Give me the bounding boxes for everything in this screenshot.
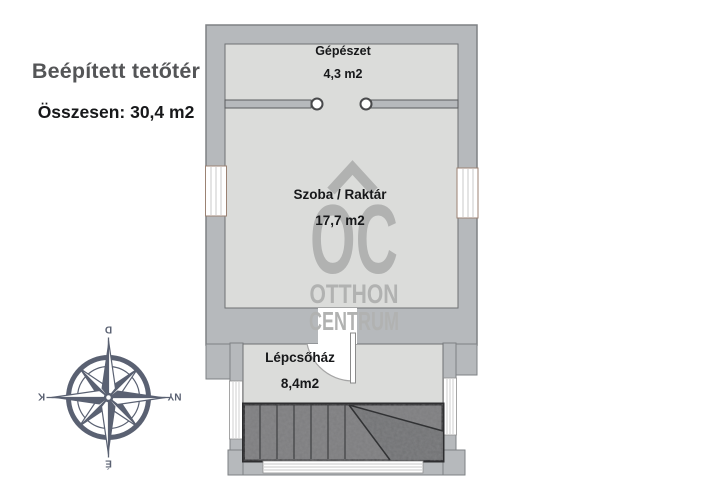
compass-rose: É D K NY (37, 324, 181, 471)
divider-wall-right (368, 100, 458, 108)
compass-label-south: D (105, 324, 112, 335)
room-area-lepcsohaz: 8,4m2 (235, 377, 365, 392)
window-main-left (206, 166, 227, 216)
room-label-gepeszet: Gépészet (273, 45, 413, 59)
divider-post-left (312, 99, 323, 110)
annex-stub-left (206, 344, 232, 379)
staircase (244, 404, 444, 461)
divider-wall-left (225, 100, 311, 108)
room-area-gepeszet: 4,3 m2 (273, 68, 413, 82)
compass-hub (105, 394, 112, 401)
compass-label-east: K (37, 391, 45, 402)
compass-label-north: É (105, 458, 112, 471)
compass-label-west: NY (167, 391, 181, 402)
window-annex-bottom (263, 461, 423, 473)
window-main-right (457, 168, 478, 218)
room-area-szoba-raktar: 17,7 m2 (260, 214, 420, 229)
room-label-szoba-raktar: Szoba / Raktár (260, 188, 420, 203)
annex-stub-right (455, 344, 477, 375)
logo-word-centrum: CENTRUM (309, 306, 399, 336)
room-label-lepcsohaz: Lépcsőház (235, 351, 365, 366)
divider-post-right (361, 99, 372, 110)
window-annex-right (444, 378, 457, 435)
floorplan-page: OC OTTHON CENTRUM (0, 0, 707, 500)
logo-word-otthon: OTTHON (310, 279, 399, 309)
